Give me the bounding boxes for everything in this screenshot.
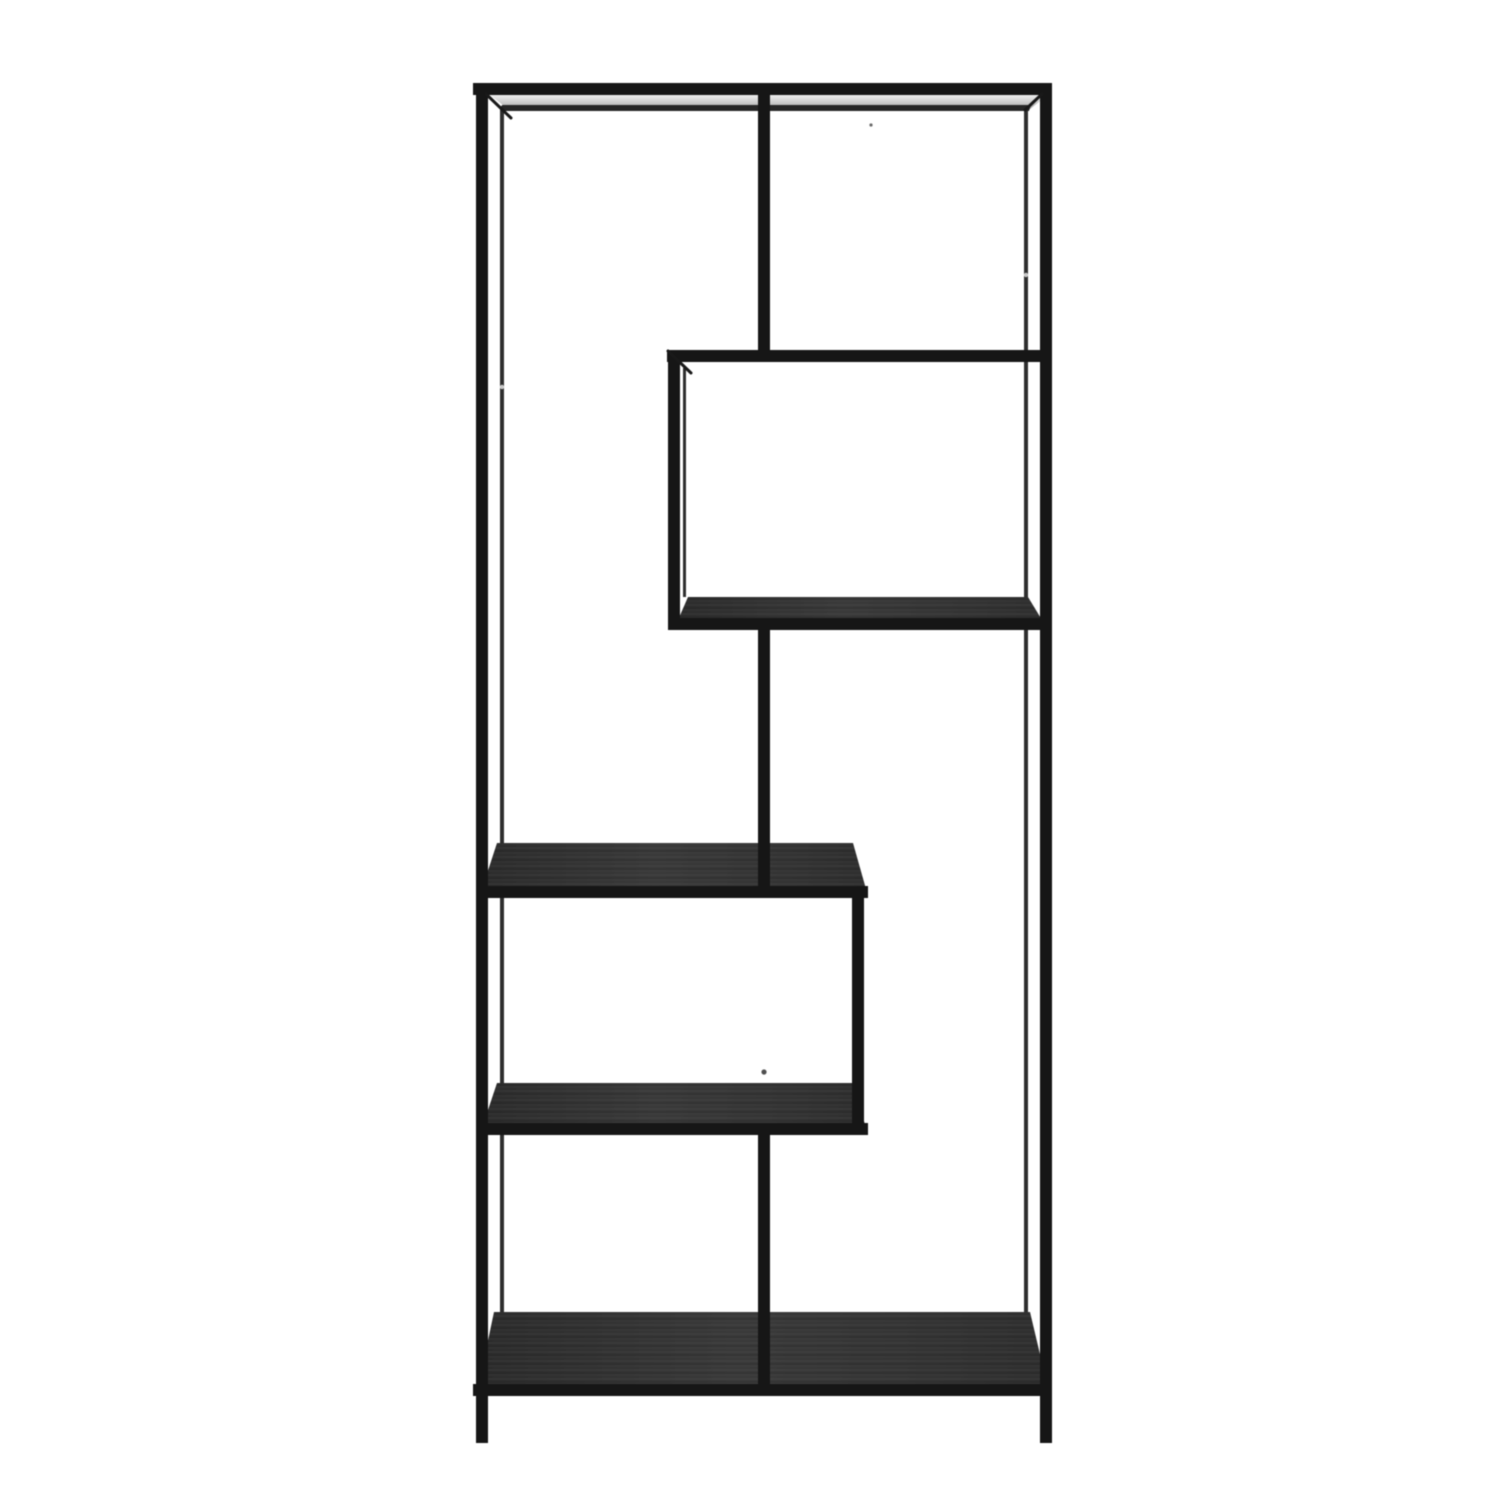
front-frame-layer xyxy=(473,83,1052,1443)
right-post xyxy=(1040,83,1052,1443)
back-right-post xyxy=(1024,106,1028,1312)
center-divider-upper xyxy=(758,92,770,356)
cube-left-post xyxy=(668,356,680,630)
screw-dot-right xyxy=(1024,273,1028,277)
middle-shelf-surface-grain xyxy=(482,843,866,889)
center-divider-middle xyxy=(758,626,770,898)
strip-screw-dot xyxy=(869,123,872,126)
bottom-front-rail xyxy=(473,1384,1052,1396)
screw-dot-center xyxy=(761,1069,766,1074)
shelving-unit-illustration xyxy=(0,0,1500,1500)
center-divider-lower xyxy=(758,1131,770,1396)
lower-shelf-front-rail xyxy=(480,1123,868,1135)
middle-shelf-front-rail xyxy=(480,886,868,898)
left-post xyxy=(476,83,488,1443)
cube-top-rail xyxy=(667,350,1052,362)
lower-shelf-surface-grain xyxy=(482,1083,866,1128)
right-support-post xyxy=(852,892,864,1135)
product-photo-canvas xyxy=(0,0,1500,1500)
cube-left-back-edge xyxy=(683,368,686,597)
cube-shelf-front-rail xyxy=(668,618,1052,630)
screw-dot-left xyxy=(500,385,504,389)
cube-shelf-surface-grain xyxy=(678,597,1042,620)
